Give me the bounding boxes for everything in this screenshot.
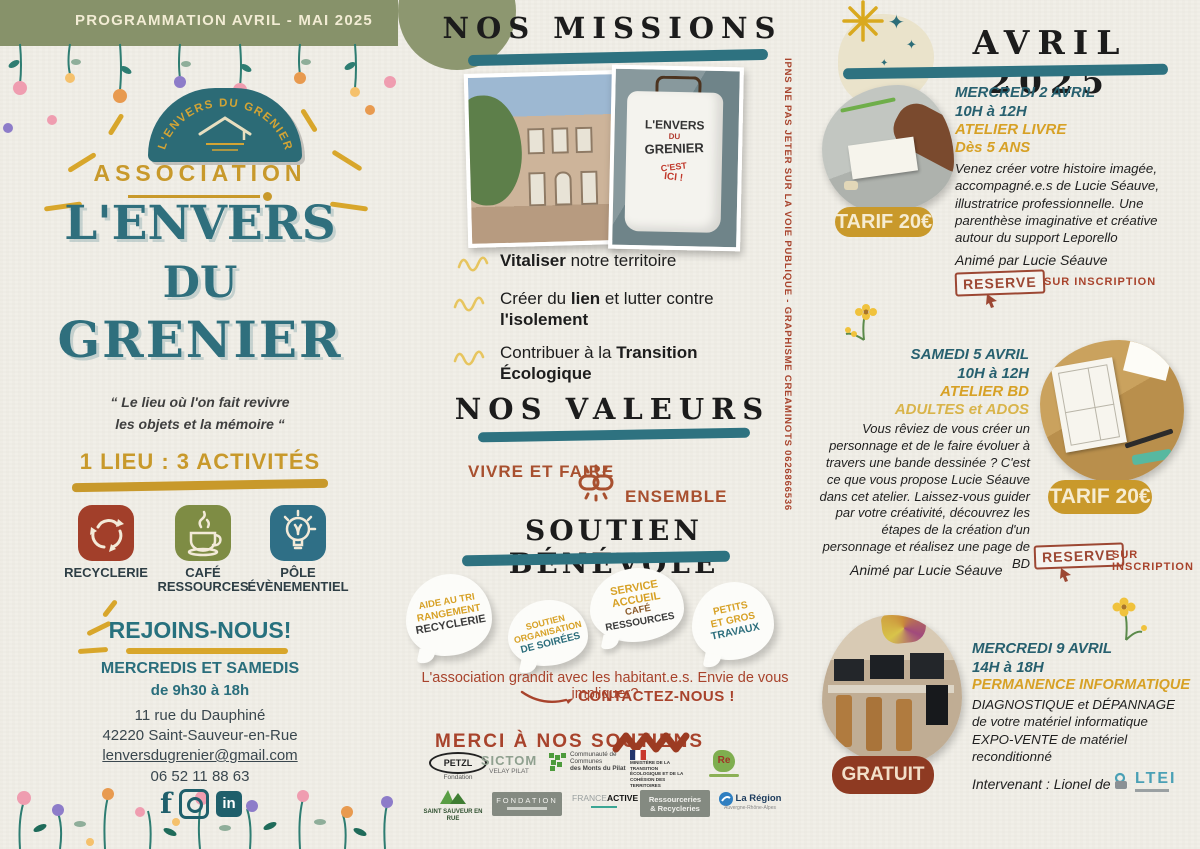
squiggle-bullet-icon [456, 252, 490, 274]
building-photo [464, 70, 623, 248]
monitor-in-photo [870, 655, 904, 679]
print-side-note: IPNS NE PAS JETER SUR LA VOIE PUBLIQUE -… [782, 58, 793, 511]
event1-host: Animé par Lucie Séauve [955, 252, 1108, 268]
event2-day: SAMEDI 5 AVRIL [815, 346, 1029, 363]
values-heading: NOS VALEURS [430, 392, 795, 426]
event1-time: 10H à 12H [955, 103, 1027, 120]
price-badge: TARIF 20€ [1048, 480, 1152, 514]
values-underline [478, 428, 750, 443]
monitor-in-photo [910, 653, 944, 679]
volunteer-bubble: PETITS ET GROS TRAVAUX [692, 582, 774, 660]
join-heading: REJOINS-NOUS! [0, 617, 400, 644]
tagline: “ Le lieu où l'on fait revivre les objet… [0, 392, 400, 435]
activity-label: RECYCLERIE [51, 566, 161, 580]
pencil-in-photo [840, 97, 896, 113]
event1-audience: Dès 5 ANS [955, 139, 1030, 156]
photo-atelier-bd [1040, 340, 1184, 482]
event3-description: DIAGNOSTIQUE et DÉPANNAGE de votre matér… [972, 696, 1192, 765]
cafe-tile [175, 505, 231, 561]
values-phrase2: ENSEMBLE [625, 487, 727, 507]
linkedin-icon[interactable]: in [216, 791, 242, 817]
contact-us-button[interactable]: CONTACTEZ-NOUS ! [578, 688, 735, 705]
event3-time: 14H à 18H [972, 659, 1044, 676]
photo-atelier-livre [822, 85, 954, 213]
event2-audience: ADULTES et ADOS [815, 401, 1029, 418]
address-line1: 11 rue du Dauphiné [0, 707, 400, 724]
gold-star-icon [842, 0, 884, 42]
event2-reserve-stamp[interactable]: RESERVE [1034, 542, 1124, 569]
logo-sictom: SICTOM VELAY PILAT [476, 754, 542, 775]
tshirt-shape: L'ENVERS DU GRENIER C'EST ICI ! [624, 91, 723, 233]
tree-in-photo [464, 95, 523, 207]
green-squares-icon [548, 752, 568, 772]
price-badge: TARIF 20€ [835, 207, 933, 237]
association-label: ASSOCIATION [0, 160, 400, 187]
event2-inscription: SUR INSCRIPTION [1112, 549, 1200, 573]
ltei-text: LTEI [1135, 770, 1176, 787]
photo-permanence-informatique [822, 615, 962, 765]
facebook-icon[interactable]: f [160, 791, 172, 817]
opening-days: MERCREDIS ET SAMEDIS [0, 660, 400, 678]
event3-title: PERMANENCE INFORMATIQUE [972, 677, 1190, 693]
event2-host: Animé par Lucie Séauve [850, 562, 1003, 578]
tshirt-photo: L'ENVERS DU GRENIER C'EST ICI ! [608, 65, 744, 252]
chain-link-icon [572, 462, 622, 504]
monitor-in-photo [834, 659, 864, 681]
note-in-photo [1123, 341, 1173, 381]
eraser-in-photo [844, 181, 858, 190]
coffee-cup-icon [175, 505, 231, 561]
event1-inscription: SUR INSCRIPTION [1044, 276, 1156, 288]
social-icons: f in [160, 789, 242, 819]
mountains-icon [438, 788, 468, 804]
free-badge: GRATUIT [832, 756, 934, 794]
email-link[interactable]: lenversdugrenier@gmail.com [102, 747, 297, 764]
logo-fondation: FONDATION [492, 792, 562, 816]
squiggle-bullet-icon [452, 292, 486, 314]
logo-ministere: MINISTÈRE DE LA TRANSITION ÉCOLOGIQUE ET… [630, 750, 688, 789]
instagram-icon[interactable] [179, 789, 209, 819]
event1-description: Venez créer votre histoire imagée, accom… [955, 160, 1193, 246]
logo-ressourceries: Ressourceries & Recycleries [640, 790, 710, 817]
yellow-flower-decoration [840, 296, 888, 342]
volunteer-bubble: SERVICE ACCUEIL CAFÉ RESSOURCES [590, 568, 684, 642]
curved-arrow-icon [520, 688, 576, 706]
logo-france-active: FRANCEACTIVE [572, 794, 636, 808]
pc-tower-in-photo [926, 685, 948, 725]
association-logo: L'ENVERS DU GRENIER [148, 88, 302, 162]
region-icon [719, 792, 733, 806]
lamp-in-photo [881, 615, 928, 645]
recyclerie-tile [78, 505, 134, 561]
logo-la-region: La Région Auvergne-Rhône-Alpes [712, 792, 788, 812]
logo-monts-du-pilat: Communauté de Communes des Monts du Pila… [548, 752, 626, 773]
paper-in-photo [848, 137, 918, 180]
brand-title-line3: GRENIER [0, 310, 400, 369]
mission-item: Créer du lien et lutter contre l'isoleme… [500, 288, 755, 331]
email-link-wrap: lenversdugrenier@gmail.com [0, 747, 400, 764]
ltei-logo: LTEI [1112, 770, 1176, 792]
ray-decoration [78, 647, 108, 654]
volunteer-bubble: AIDE AU TRI RANGEMENT RECYCLERIE [406, 574, 492, 656]
banner-text: PROGRAMMATION AVRIL - MAI 2025 [75, 12, 373, 29]
mission-item: Contribuer à la Transition Écologique [500, 342, 740, 385]
event2-description: Vous rêviez de vous créer un personnage … [812, 421, 1030, 573]
missions-heading: NOS MISSIONS [430, 11, 795, 45]
cursor-icon [1058, 567, 1074, 583]
shirt-text: GRENIER [626, 139, 722, 157]
squiggle-bullet-icon [452, 346, 486, 368]
diamond-sparkle-icon: ✦ [906, 38, 917, 53]
pen-in-photo [1124, 428, 1173, 448]
roof-icon [200, 118, 250, 134]
chair-in-photo [836, 695, 852, 747]
missions-underline [468, 49, 768, 66]
brochure: PROGRAMMATION AVRIL - MAI 2025 L'ENVERS … [0, 0, 1200, 849]
activity-label: CAFÉ RESSOURCES [148, 566, 258, 595]
bd-page-in-photo [1051, 357, 1127, 452]
event2-title: ATELIER BD [815, 383, 1029, 400]
opening-hours: de 9h30 à 18h [0, 682, 400, 699]
event3-day: MERCREDI 9 AVRIL [972, 640, 1112, 657]
ltei-lock-icon [1112, 771, 1132, 791]
event1-title: ATELIER LIVRE [955, 121, 1066, 138]
highlighter-in-photo [1131, 449, 1172, 466]
recycle-icon [78, 505, 134, 561]
address-line2: 42220 Saint-Sauveur-en-Rue [0, 727, 400, 744]
brand-title-line2: DU [0, 258, 400, 308]
join-underline [126, 648, 288, 654]
activities-underline [72, 479, 328, 492]
event2-time: 10H à 12H [815, 365, 1029, 382]
volunteer-heading: SOUTIEN BÉNÉVOLE [424, 514, 804, 580]
logo-saint-sauveur: SAINT SAUVEUR EN RUE [420, 788, 486, 823]
chair-in-photo [896, 699, 912, 751]
chair-in-photo [866, 697, 882, 751]
activity-label: PÔLE ÉVÈNEMENTIEL [243, 566, 353, 595]
yellow-flower-decoration [1104, 590, 1152, 642]
logo-re: Re [704, 750, 744, 779]
evenementiel-tile [270, 505, 326, 561]
activities-heading: 1 LIEU : 3 ACTIVITÉS [0, 449, 400, 475]
mission-item: Vitaliser notre territoire [500, 250, 755, 271]
diamond-sparkle-icon: ✦ [888, 10, 905, 34]
event3-intervenant: Intervenant : Lionel de [972, 776, 1111, 792]
lightbulb-icon [270, 505, 326, 561]
brand-title-line1: L'ENVERS [0, 196, 400, 251]
cursor-icon [984, 293, 1000, 309]
volunteer-bubble: SOUTIEN ORGANISATION DE SOIRÉES [508, 600, 588, 666]
event1-day: MERCREDI 2 AVRIL [955, 84, 1095, 101]
logo-artwork: L'ENVERS DU GRENIER [148, 88, 302, 162]
ray-decoration [102, 599, 118, 618]
french-flag-icon [630, 750, 646, 760]
